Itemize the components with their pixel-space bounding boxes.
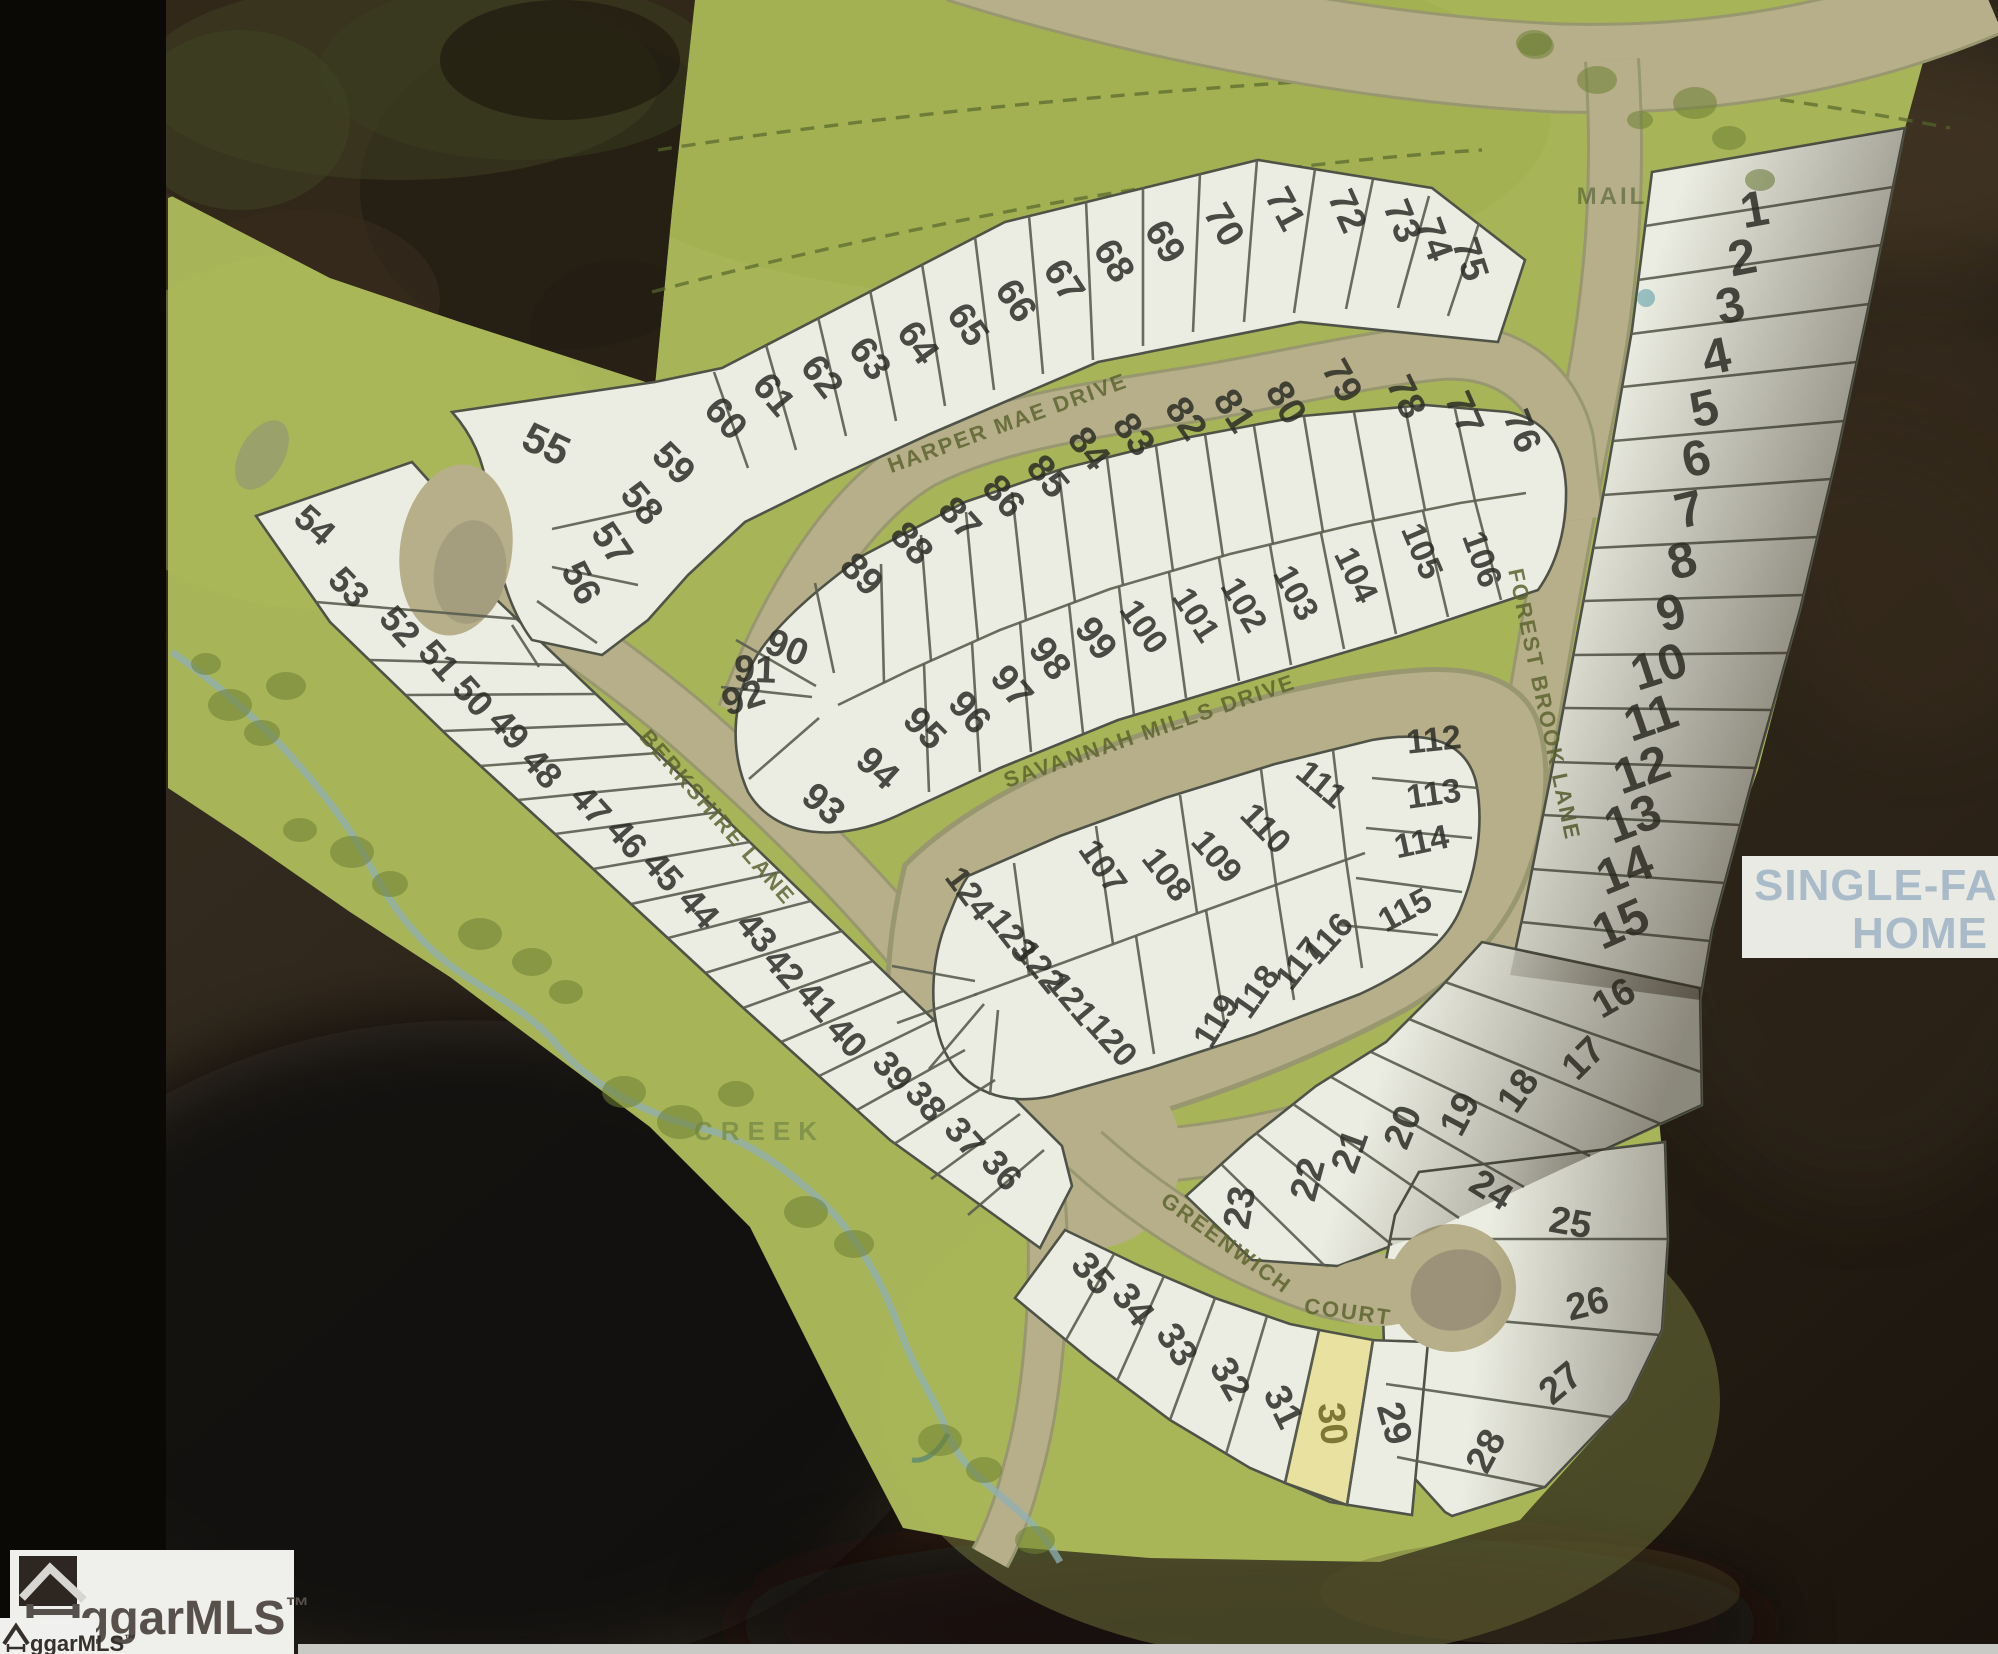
svg-text:ggarMLS™: ggarMLS™ [30,1631,136,1654]
svg-text:30: 30 [1309,1401,1355,1447]
svg-text:MAIL: MAIL [1577,183,1648,210]
svg-text:112: 112 [1405,718,1464,762]
svg-text:HOME: HOME [1852,909,1988,958]
svg-text:SINGLE-FA: SINGLE-FA [1754,861,1998,910]
svg-text:113: 113 [1404,771,1464,816]
svg-text:CREEK: CREEK [694,1116,825,1146]
